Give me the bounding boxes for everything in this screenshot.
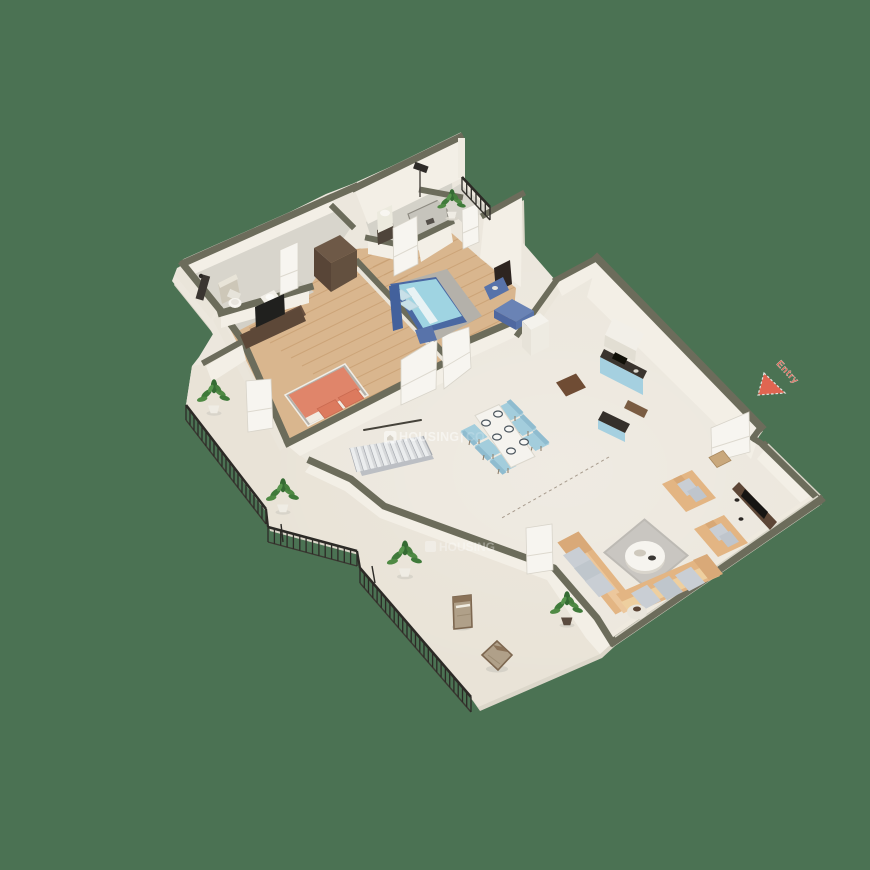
svg-text:CO: CO: [466, 430, 485, 444]
svg-text:HOUSING: HOUSING: [439, 540, 495, 554]
svg-text:HOUSING: HOUSING: [399, 430, 459, 444]
